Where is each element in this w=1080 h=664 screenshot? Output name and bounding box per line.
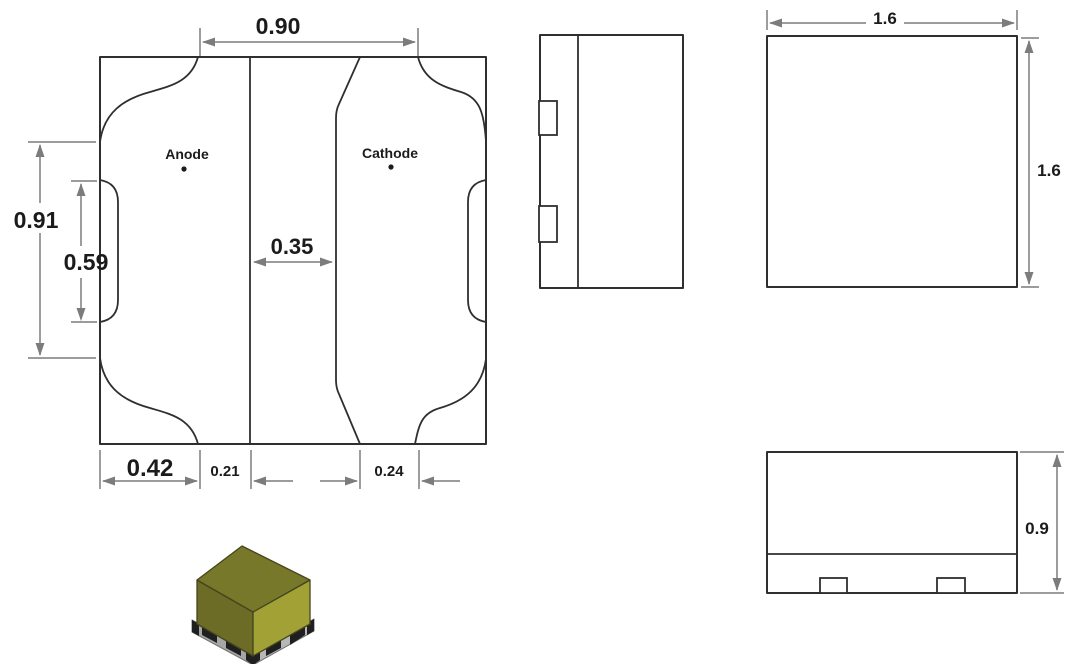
- dim-arrow-up: [36, 144, 45, 157]
- side-view-terminal-lower: [539, 206, 557, 242]
- front-view-pad-left: [820, 578, 847, 593]
- dimension-bottom-group: 0.42 0.21 0.24: [100, 450, 460, 489]
- dim-arrow-right: [345, 477, 358, 486]
- anode-label: Anode: [165, 146, 209, 162]
- dimension-pad-gap: 0.35: [253, 234, 333, 267]
- dim-value: 0.42: [127, 455, 174, 482]
- technical-drawing-canvas: Anode Cathode 0.90 0.91: [0, 0, 1080, 664]
- dim-value: 0.35: [271, 234, 314, 259]
- dim-value: 0.91: [14, 207, 59, 233]
- dim-arrow-left: [769, 19, 782, 28]
- corner-curve-bottom-left: [100, 358, 198, 444]
- dim-arrow-down: [1025, 272, 1034, 285]
- dim-arrow-left: [102, 477, 115, 486]
- dim-arrow-right: [1002, 19, 1015, 28]
- anode-marker-dot: [181, 166, 186, 171]
- dim-arrow-right: [403, 38, 416, 47]
- front-view-outline: [767, 452, 1017, 593]
- cathode-marker-dot: [388, 164, 393, 169]
- dim-arrow-up: [77, 183, 86, 196]
- dim-value: 1.6: [873, 9, 897, 28]
- dimension-top-view-height: 1.6: [1021, 38, 1061, 287]
- dim-value: 0.90: [256, 13, 301, 39]
- dim-arrow-right: [185, 477, 198, 486]
- cathode-pad-edge: [336, 57, 360, 444]
- dim-arrow-left: [421, 477, 434, 486]
- front-view: 0.9: [767, 452, 1064, 593]
- iso-render: [192, 546, 314, 664]
- dim-arrow-left: [253, 477, 266, 486]
- corner-curve-top-left: [100, 57, 198, 142]
- dim-arrow-down: [1053, 578, 1062, 591]
- dim-arrow-down: [36, 343, 45, 356]
- right-edge-notch: [468, 180, 486, 322]
- dim-value: 0.21: [210, 463, 239, 480]
- corner-curve-top-right: [418, 57, 486, 141]
- dim-arrow-up: [1025, 40, 1034, 53]
- footprint-view: Anode Cathode 0.90 0.91: [14, 13, 486, 489]
- cathode-label: Cathode: [362, 145, 418, 161]
- dim-value: 0.24: [374, 463, 404, 480]
- top-view: 1.6 1.6: [767, 9, 1061, 287]
- led-package-dimension-drawing: Anode Cathode 0.90 0.91: [0, 0, 1080, 664]
- dim-arrow-right: [320, 258, 333, 267]
- side-view-outline: [540, 35, 683, 288]
- dimension-front-view-height: 0.9: [1020, 452, 1064, 593]
- dim-arrow-down: [77, 308, 86, 321]
- front-view-pad-right: [937, 578, 965, 593]
- top-view-outline: [767, 36, 1017, 287]
- dim-arrow-left: [253, 258, 266, 267]
- dim-arrow-left: [202, 38, 215, 47]
- dim-value: 0.59: [64, 249, 109, 275]
- corner-curve-bottom-right: [415, 359, 486, 444]
- dim-value: 1.6: [1037, 161, 1061, 180]
- dimension-top-width: 0.90: [200, 13, 418, 56]
- side-view-terminal-upper: [539, 101, 557, 135]
- side-view: [539, 35, 683, 288]
- dimension-top-view-width: 1.6: [767, 9, 1017, 30]
- dimension-inner-height: 0.59: [64, 181, 109, 322]
- dim-value: 0.9: [1025, 519, 1049, 538]
- dim-arrow-up: [1053, 454, 1062, 467]
